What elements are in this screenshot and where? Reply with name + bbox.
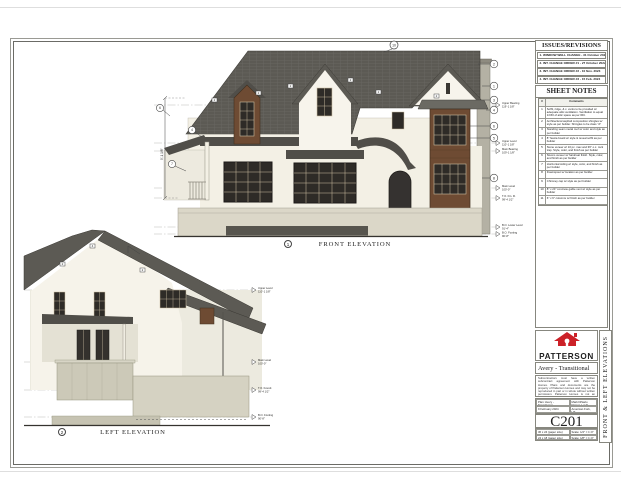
svg-text:3: 3: [493, 98, 495, 102]
paper-size-2: 24 x 18 (paper size): [536, 435, 570, 441]
svg-text:4: 4: [191, 128, 193, 132]
page-edge-top: [0, 7, 621, 8]
svg-text:Upper Level: Upper Level: [502, 139, 517, 143]
svg-text:109'-1 1/8": 109'-1 1/8": [502, 151, 515, 155]
brand-name: PATTERSON: [536, 352, 597, 361]
svg-text:Main Level: Main Level: [502, 184, 515, 188]
front-house: [164, 51, 492, 237]
svg-text:1: 1: [493, 84, 495, 88]
scale-2: Scale: 1/8" = 1'-0": [570, 435, 597, 441]
svg-text:99'-4 1/2": 99'-4 1/2": [258, 390, 269, 394]
project-info-box: Plan: Avery - Transitional Mark DiSarioD…: [535, 398, 598, 414]
left-house: [24, 230, 270, 426]
svg-text:B.O. Lower Level: B.O. Lower Level: [502, 223, 523, 227]
sheet-notes-table: # Comments 1Soffit, ridge, & c. vents to…: [538, 98, 608, 206]
deck-post: [123, 324, 126, 362]
svg-text:119'-1 1/8": 119'-1 1/8": [502, 105, 515, 109]
svg-text:6: 6: [159, 106, 161, 110]
dim-text: 9'-1 1/8": [160, 148, 164, 160]
svg-text:Upper Level: Upper Level: [258, 286, 273, 290]
house-logo-icon: [554, 332, 580, 346]
left-elevation-label: LEFT ELEVATION: [73, 429, 193, 436]
plan-title: Avery - Transitional: [536, 363, 597, 374]
issues-title: ISSUES/REVISIONS: [536, 41, 607, 51]
note-row: 2Architectural asphalt composition shing…: [539, 119, 607, 128]
note-row: 9Chimney cap w/ style as per builder: [539, 179, 607, 187]
svg-text:T.O. Fin. Fl.: T.O. Fin. Fl.: [502, 194, 516, 198]
svg-text:100'-0": 100'-0": [258, 362, 266, 366]
note-row: 5Stone veneer w/ 10 pc. max and 36" o.c.…: [539, 145, 607, 154]
scale-box: 36 x 24 (paper size) Scale: 1/4" = 1'-0"…: [535, 428, 598, 441]
note-row: 108" x 24" concrete gable vent w/ style …: [539, 188, 607, 197]
window-awning: [286, 150, 364, 159]
svg-text:99'-4 1/2": 99'-4 1/2": [502, 198, 513, 202]
sheet-number-box: C201: [535, 414, 598, 428]
svg-text:110'-1 1/8": 110'-1 1/8": [502, 143, 515, 147]
sheet-page: { "sheet": { "front_label": "FRONT ELEVA…: [0, 0, 621, 480]
concrete-foundation: [133, 376, 249, 417]
plan-title-box: Avery - Transitional: [535, 362, 598, 374]
svg-text:110'-1 1/8": 110'-1 1/8": [258, 290, 271, 294]
main-window-right: [294, 163, 356, 203]
ridge-callout: 10: [392, 43, 396, 47]
svg-text:4: 4: [493, 108, 495, 112]
issues-revisions-box: ISSUES/REVISIONS 1. WINDOW WELL CHANGE -…: [535, 40, 608, 84]
upper-window: [392, 112, 404, 129]
info-plan: Plan: Avery - Transitional: [536, 399, 570, 406]
note-row: 1Soffit, ridge, & c. vents to be provide…: [539, 107, 607, 119]
revision-row: 3. INT. CHANGE ORDER #2 - 10 Nov. 2023: [537, 68, 606, 76]
info-client: Mark DiSarioDraper, Lot 8: [570, 399, 597, 406]
sheet-title-strip: FRONT & LEFT ELEVATIONS: [599, 330, 612, 443]
revision-row: 4. INT. CHANGE ORDER #3 - 15 Feb. 2024: [537, 76, 606, 84]
page-edge-bottom: [0, 471, 621, 472]
svg-text:90'-8": 90'-8": [258, 417, 265, 421]
revision-row: 2. INT. CHANGE ORDER #1 - 27 October 202…: [537, 60, 606, 68]
left-elevation-drawing: 2 4 2 Upper Level110'-1 1/8" Main Level1…: [20, 228, 290, 433]
svg-text:5: 5: [493, 136, 495, 140]
sheet-title-vertical: FRONT & LEFT ELEVATIONS: [603, 336, 609, 438]
svg-text:8: 8: [493, 176, 495, 180]
disclaimer-box: Subcontractors must have a written subco…: [535, 375, 598, 397]
front-elevation-drawing: 10 2 1 3 4 6 5 8 2 2: [148, 38, 538, 250]
note-row: 6Stucco veneer w/ hardcoat finish. Style…: [539, 154, 607, 163]
note-row: 48" fascia board w/ style & reveal soffi…: [539, 136, 607, 145]
info-date: 9 February 2024: [536, 406, 570, 413]
svg-text:2: 2: [493, 62, 495, 66]
info-city: American Fork, UT: [570, 406, 597, 413]
arched-door: [389, 171, 411, 212]
svg-text:91'-4": 91'-4": [502, 227, 509, 231]
svg-text:Main Level: Main Level: [258, 358, 271, 362]
gable-vent: [446, 83, 450, 94]
svg-text:6: 6: [493, 124, 495, 128]
main-window-left: [224, 162, 272, 202]
concrete-deck-wall: [57, 363, 133, 400]
disclaimer-text: Subcontractors must have a written subco…: [536, 376, 597, 397]
svg-text:90'-8": 90'-8": [502, 234, 509, 238]
note-row: 3Standing seam metal roof w/ color and s…: [539, 128, 607, 137]
revision-row: 1. WINDOW WELL CHANGE - 31 October 2022: [537, 52, 606, 60]
svg-text:B.O. Footing: B.O. Footing: [258, 413, 274, 417]
note-row: 7Horizontal siding w/ style, color, and …: [539, 162, 607, 171]
svg-text:Upper Bearing: Upper Bearing: [502, 101, 520, 105]
wood-accent: [200, 308, 214, 324]
sheet-notes-title: SHEET NOTES: [536, 86, 607, 98]
front-elevation-label: FRONT ELEVATION: [295, 241, 415, 248]
svg-text:Main Bearing: Main Bearing: [502, 147, 518, 151]
porch-post: [205, 142, 209, 200]
svg-text:100'-0": 100'-0": [502, 188, 510, 192]
note-row: 116" x 6" columns w/ finish as per build…: [539, 196, 607, 204]
svg-text:T.O. Found.: T.O. Found.: [258, 386, 272, 390]
brand-box: PATTERSON H O M E S: [535, 330, 598, 361]
sheet-number: C201: [536, 415, 597, 428]
svg-text:7: 7: [171, 162, 173, 166]
patterson-homes-logo: [536, 331, 598, 347]
left-elevation-number-bubble: 2: [58, 428, 66, 436]
note-row: 8Downspout w/ location as per builder: [539, 171, 607, 179]
svg-text:B.O. Footing: B.O. Footing: [502, 230, 518, 234]
notes-header-row: # Comments: [539, 99, 607, 107]
metal-awning: [418, 100, 488, 109]
step: [52, 416, 160, 425]
sheet-notes-box: SHEET NOTES # Comments 1Soffit, ridge, &…: [535, 85, 608, 328]
